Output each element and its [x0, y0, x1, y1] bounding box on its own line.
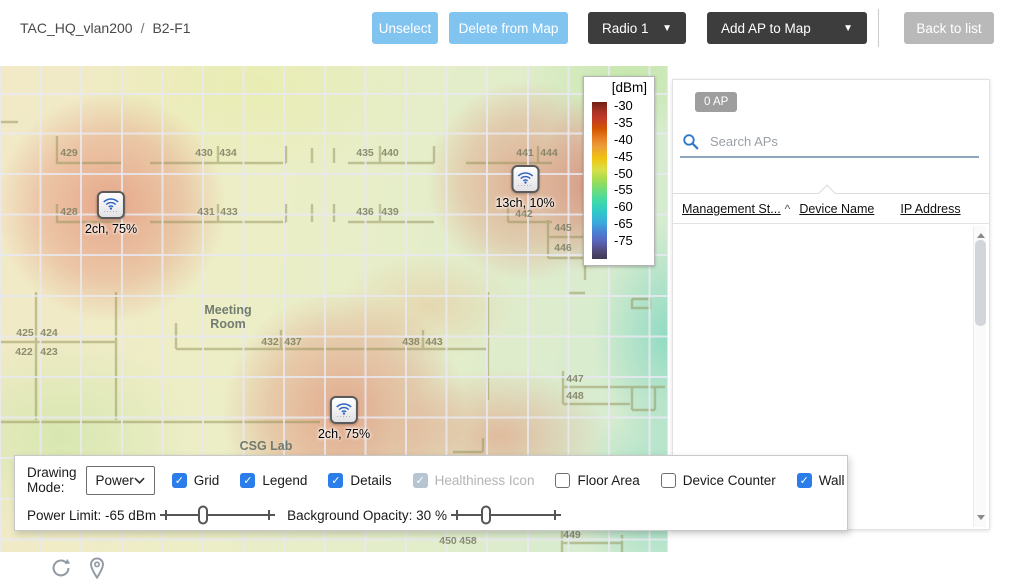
wifi-icon — [516, 171, 534, 184]
add-ap-label: Add AP to Map — [721, 21, 811, 36]
checkbox-label: Wall — [819, 473, 845, 488]
slider-track[interactable] — [451, 514, 561, 516]
radio-dropdown-label: Radio 1 — [602, 21, 649, 36]
background-opacity-label: Background Opacity: 30 % — [287, 508, 447, 523]
radio-dropdown-button[interactable]: Radio 1 ▼ — [588, 12, 686, 44]
checkbox-details[interactable]: ✓Details — [328, 473, 391, 488]
drawing-mode-value: Power — [96, 473, 134, 488]
legend-tick-label: -30 — [614, 99, 633, 112]
checkbox-legend[interactable]: ✓Legend — [240, 473, 307, 488]
scrollbar[interactable] — [973, 226, 986, 527]
slider-end-tick — [456, 510, 458, 520]
checkbox-grid[interactable]: ✓Grid — [172, 473, 220, 488]
legend-tick-label: -75 — [614, 234, 633, 247]
breadcrumb-separator: / — [141, 20, 145, 36]
wifi-icon — [102, 197, 120, 210]
checkbox-healthiness-icon: ✓Healthiness Icon — [413, 473, 535, 488]
ap-details-label: 2ch, 75% — [85, 222, 137, 236]
checkbox-label: Floor Area — [577, 473, 639, 488]
checkbox-box[interactable]: ✓ — [328, 473, 343, 488]
checkbox-label: Details — [350, 473, 391, 488]
checkbox-device-counter[interactable]: Device Counter — [661, 473, 776, 488]
background-opacity-text: Background Opacity: — [287, 508, 412, 523]
legend-ticks: -30-35-40-45-50-55-60-65-75 — [614, 99, 633, 247]
ap-led-dots: ····· — [104, 210, 119, 214]
pin-icon — [85, 556, 109, 580]
chevron-down-icon: ▼ — [843, 23, 853, 34]
ap-details-label: 13ch, 10% — [495, 196, 554, 210]
checkbox-floor-area[interactable]: Floor Area — [555, 473, 639, 488]
legend-title: [dBm] — [584, 77, 654, 95]
access-point[interactable]: ····· 13ch, 10% — [495, 165, 554, 210]
legend-tick-label: -40 — [614, 133, 633, 146]
column-header-device-name[interactable]: Device Name — [799, 202, 874, 216]
scroll-thumb[interactable] — [975, 240, 986, 326]
ap-count-badge: 0 AP — [695, 92, 737, 112]
ap-icon[interactable]: ····· — [330, 396, 358, 424]
wifi-icon — [335, 402, 353, 415]
checkbox-box[interactable]: ✓ — [240, 473, 255, 488]
add-ap-to-map-dropdown-button[interactable]: Add AP to Map ▼ — [707, 12, 867, 44]
drawing-mode-label: Drawing Mode: — [27, 465, 77, 495]
display-options: ✓Grid✓Legend✓Details✓Healthiness IconFlo… — [172, 473, 845, 488]
delete-from-map-button[interactable]: Delete from Map — [449, 12, 568, 44]
chevron-down-icon: ▼ — [662, 23, 672, 34]
map-footer — [0, 552, 668, 583]
display-options-row: Drawing Mode: Power ✓Grid✓Legend✓Details… — [15, 456, 847, 497]
legend-tick-label: -50 — [614, 167, 633, 180]
unselect-button[interactable]: Unselect — [372, 12, 438, 44]
checkbox-box[interactable] — [661, 473, 676, 488]
table-header-row: Management St...^Device NameIP Address — [682, 202, 961, 216]
ap-details-label: 2ch, 75% — [318, 427, 370, 441]
chevron-down-icon — [134, 477, 145, 484]
breadcrumb: TAC_HQ_vlan200/B2-F1 — [20, 20, 191, 36]
checkbox-label: Grid — [194, 473, 220, 488]
checkbox-label: Healthiness Icon — [435, 473, 535, 488]
checkbox-label: Device Counter — [683, 473, 776, 488]
header-divider — [878, 9, 879, 47]
breadcrumb-floor: B2-F1 — [152, 20, 190, 36]
search-row — [680, 126, 979, 158]
sort-asc-indicator: ^ — [785, 202, 791, 216]
scroll-down-arrow[interactable] — [974, 514, 987, 527]
legend-color-scale — [592, 102, 607, 259]
table-divider — [673, 193, 989, 194]
access-point[interactable]: ····· 2ch, 75% — [318, 396, 370, 441]
slider-end-tick — [268, 510, 270, 520]
checkbox-wall[interactable]: ✓Wall — [797, 473, 845, 488]
power-limit-slider[interactable] — [165, 505, 270, 525]
background-opacity-value: 30 % — [416, 508, 447, 523]
slider-end-tick — [165, 510, 167, 520]
slider-thumb[interactable] — [198, 506, 208, 525]
slider-end-tick — [554, 510, 556, 520]
search-input[interactable] — [708, 133, 979, 150]
legend-tick-label: -55 — [614, 183, 633, 196]
sliders-row: Power Limit: -65 dBm Background Opacity:… — [15, 497, 847, 525]
scroll-up-arrow[interactable] — [974, 226, 987, 239]
ap-led-dots: ····· — [337, 415, 352, 419]
checkbox-box[interactable]: ✓ — [172, 473, 187, 488]
legend-tick-label: -65 — [614, 217, 633, 230]
legend-tick-label: -60 — [614, 200, 633, 213]
drawing-mode-select[interactable]: Power — [86, 466, 155, 495]
background-opacity-slider[interactable] — [456, 505, 556, 525]
legend-tick-label: -35 — [614, 116, 633, 129]
power-limit-label: Power Limit: -65 dBm — [27, 508, 156, 523]
search-icon — [682, 133, 699, 150]
display-controls-panel: Drawing Mode: Power ✓Grid✓Legend✓Details… — [14, 455, 848, 531]
back-to-list-button[interactable]: Back to list — [904, 12, 994, 44]
pin-button[interactable] — [85, 556, 109, 580]
power-limit-value: -65 dBm — [105, 508, 156, 523]
power-limit-text: Power Limit: — [27, 508, 101, 523]
column-header-management-st[interactable]: Management St... — [682, 202, 781, 216]
refresh-button[interactable] — [49, 556, 73, 580]
refresh-icon — [49, 556, 73, 580]
checkbox-label: Legend — [262, 473, 307, 488]
checkbox-box[interactable] — [555, 473, 570, 488]
top-bar: TAC_HQ_vlan200/B2-F1 Unselect Delete fro… — [0, 0, 1010, 66]
column-header-ip-address[interactable]: IP Address — [900, 202, 960, 216]
access-point[interactable]: ····· 2ch, 75% — [85, 191, 137, 236]
slider-track[interactable] — [160, 514, 275, 516]
checkbox-box[interactable]: ✓ — [797, 473, 812, 488]
legend-tick-label: -45 — [614, 150, 633, 163]
slider-thumb[interactable] — [481, 506, 491, 525]
checkbox-box: ✓ — [413, 473, 428, 488]
ap-icon[interactable]: ····· — [511, 165, 539, 193]
ap-led-dots: ····· — [517, 184, 532, 188]
breadcrumb-site[interactable]: TAC_HQ_vlan200 — [20, 20, 133, 36]
collapse-notch[interactable] — [819, 185, 836, 202]
dbm-legend: [dBm] -30-35-40-45-50-55-60-65-75 — [583, 76, 655, 266]
ap-icon[interactable]: ····· — [97, 191, 125, 219]
